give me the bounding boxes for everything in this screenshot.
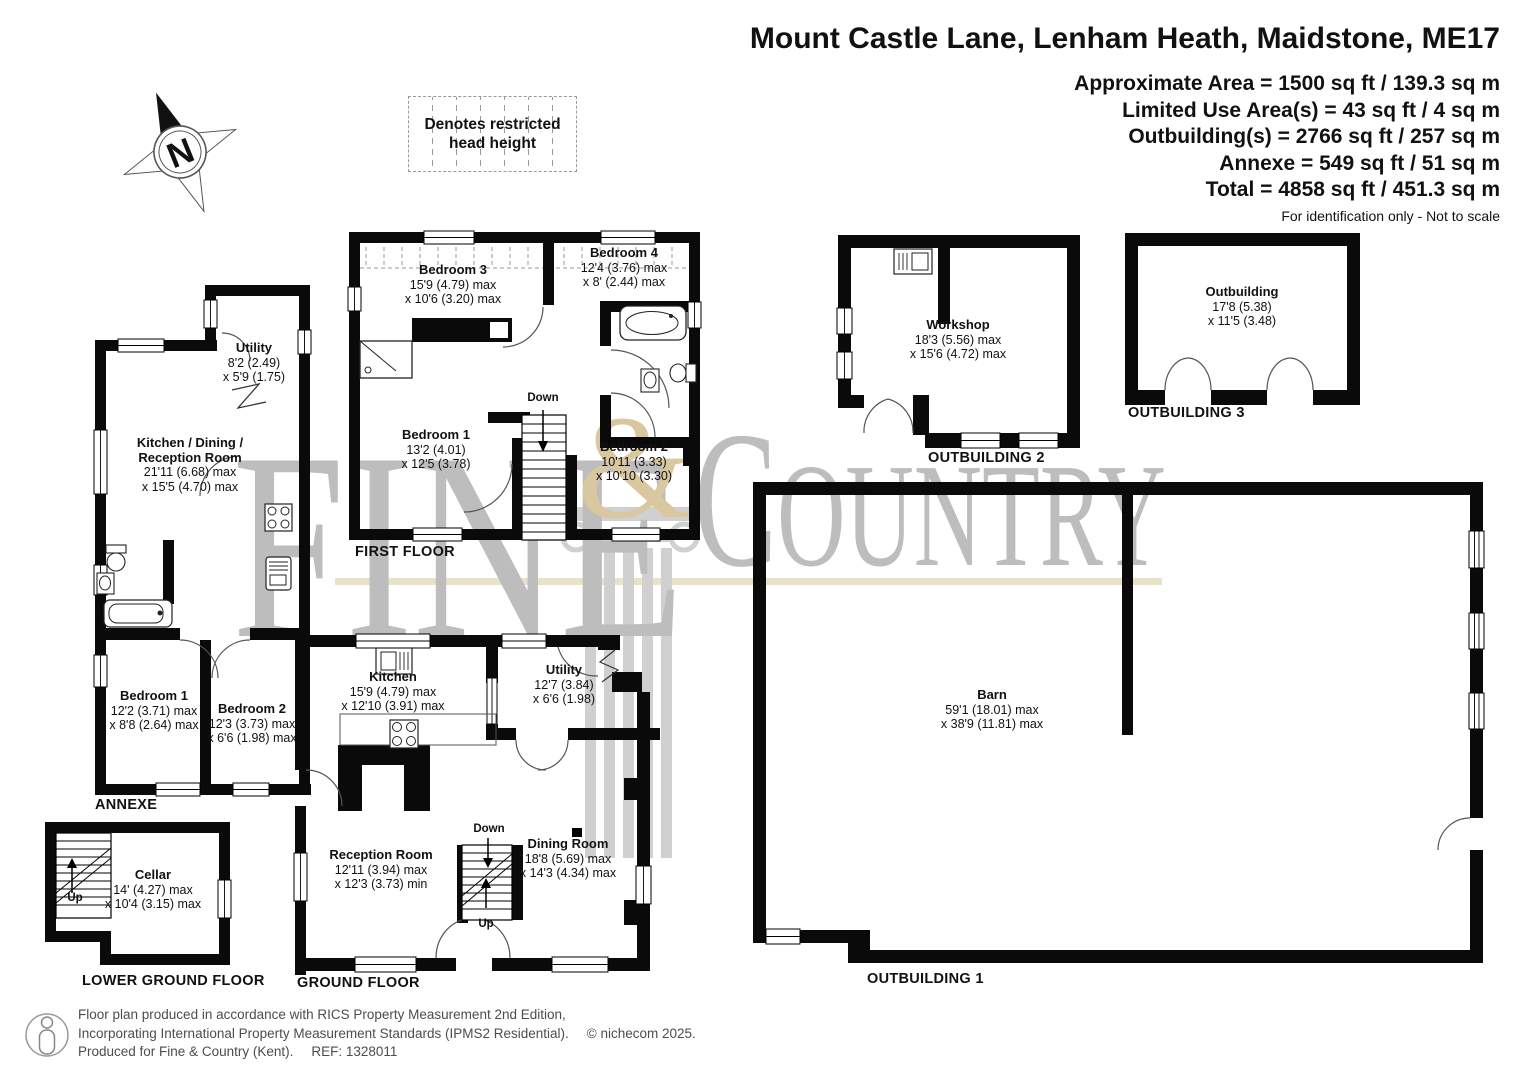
ground-floor-label: GROUND FLOOR	[297, 975, 420, 991]
room-label-dining: Dining Room 18'8 (5.69) max x 14'3 (4.34…	[520, 837, 616, 881]
room-label-cellar: Cellar 14' (4.27) max x 10'4 (3.15) max	[105, 868, 201, 912]
area-summary: Approximate Area = 1500 sq ft / 139.3 sq…	[1074, 71, 1500, 204]
outbuilding1-label: OUTBUILDING 1	[867, 971, 984, 987]
room-label-bedroom2-annexe: Bedroom 2 12'3 (3.73) max x 6'6 (1.98) m…	[207, 702, 296, 746]
lower-ground-floor-label: LOWER GROUND FLOOR	[82, 973, 265, 989]
entrance-opening	[456, 958, 492, 971]
area-line: Annexe = 549 sq ft / 51 sq m	[1074, 151, 1500, 178]
copyright: © nichecom 2025.	[587, 1026, 696, 1041]
door-arcs	[180, 333, 250, 678]
outbuilding2-label: OUTBUILDING 2	[928, 450, 1045, 466]
stairs-down-label-gf: Down	[473, 823, 504, 835]
stairs-up-label-gf: Up	[478, 918, 493, 930]
hob-icon	[265, 504, 292, 531]
stairs-down-label-ff: Down	[527, 392, 558, 404]
area-line: Total = 4858 sq ft / 451.3 sq m	[1074, 177, 1500, 204]
nichecom-person-icon	[24, 1008, 70, 1062]
toilet-icon	[670, 364, 696, 382]
footer-note: Floor plan produced in accordance with R…	[78, 1006, 696, 1062]
outbuilding1-barn-plan	[753, 482, 1484, 963]
door-arc	[1438, 818, 1470, 850]
sink-icon	[641, 369, 659, 392]
room-label-bedroom2-ff: Bedroom 2 10'11 (3.33) x 10'10 (3.30)	[596, 440, 672, 484]
hob-icon	[390, 720, 418, 748]
double-door-arcs	[864, 399, 913, 433]
annexe-label: ANNEXE	[95, 797, 157, 813]
room-label-kitchen-dining-annexe: Kitchen / Dining / Reception Room 21'11 …	[137, 436, 243, 494]
room-label-kitchen-gf: Kitchen 15'9 (4.79) max x 12'10 (3.91) m…	[341, 670, 444, 714]
sink-icon	[97, 573, 114, 594]
room-label-bedroom4: Bedroom 4 12'4 (3.76) max x 8' (2.44) ma…	[581, 246, 667, 290]
room-label-bedroom1-annexe: Bedroom 1 12'2 (3.71) max x 8'8 (2.64) m…	[109, 689, 198, 733]
area-line: Approximate Area = 1500 sq ft / 139.3 sq…	[1074, 71, 1500, 98]
area-line: Outbuilding(s) = 2766 sq ft / 257 sq m	[1074, 124, 1500, 151]
room-label-barn: Barn 59'1 (18.01) max x 38'9 (11.81) max	[941, 688, 1043, 732]
reference-number: REF: 1328011	[311, 1044, 397, 1059]
double-door-arcs	[1165, 358, 1313, 390]
shower-icon	[360, 341, 412, 378]
area-line: Limited Use Area(s) = 43 sq ft / 4 sq m	[1074, 98, 1500, 125]
walls	[753, 482, 1483, 963]
door-opening	[1470, 818, 1483, 850]
stairs-up-label-lgf: Up	[67, 892, 82, 904]
room-label-reception: Reception Room 12'11 (3.94) max x 12'3 (…	[329, 848, 432, 892]
first-floor-label: FIRST FLOOR	[355, 544, 455, 560]
outbuilding3-label: OUTBUILDING 3	[1128, 405, 1245, 421]
room-label-utility-gf: Utility 12'7 (3.84) x 6'6 (1.98)	[533, 663, 595, 707]
room-label-outbuilding3: Outbuilding 17'8 (5.38) x 11'5 (3.48)	[1206, 285, 1279, 329]
page-title: Mount Castle Lane, Lenham Heath, Maidsto…	[750, 22, 1500, 56]
chimney-recess	[490, 322, 508, 338]
room-label-bedroom3: Bedroom 3 15'9 (4.79) max x 10'6 (3.20) …	[405, 263, 501, 307]
scale-disclaimer: For identification only - Not to scale	[1281, 208, 1500, 224]
sink-icon	[894, 249, 932, 274]
toilet-icon	[106, 545, 126, 571]
bath-icon	[620, 306, 686, 340]
opening-break-line	[232, 384, 266, 408]
bath-icon	[104, 600, 172, 627]
room-label-utility-annexe: Utility 8'2 (2.49) x 5'9 (1.75)	[223, 341, 285, 385]
room-label-workshop: Workshop 18'3 (5.56) max x 15'6 (4.72) m…	[910, 318, 1006, 362]
floorplan-page: FINE & COUNTRY Mount Castle Lane, Lenham…	[0, 0, 1527, 1080]
room-label-bedroom1-ff: Bedroom 1 13'2 (4.01) x 12'5 (3.78)	[401, 428, 470, 472]
appliance-icon	[266, 557, 291, 590]
